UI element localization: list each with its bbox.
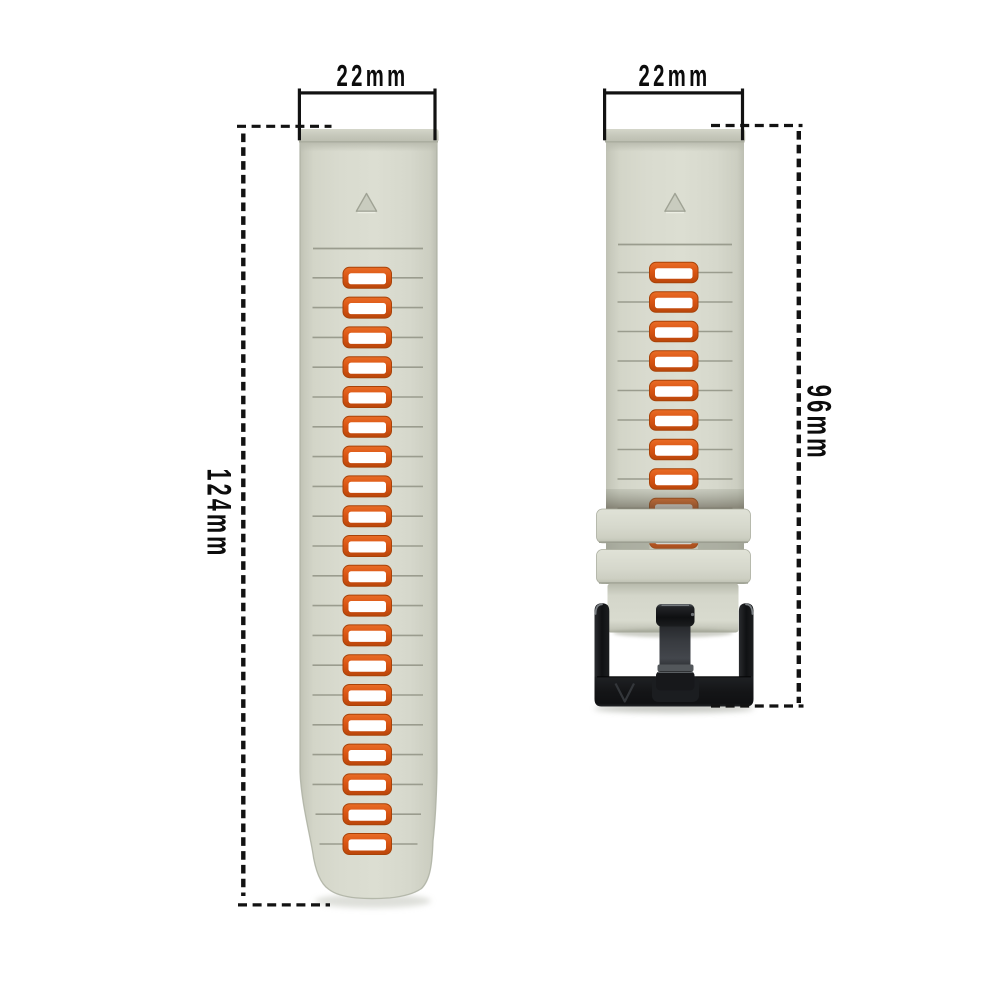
svg-text:22mm: 22mm — [337, 59, 409, 93]
svg-text:96mm: 96mm — [800, 385, 838, 461]
svg-text:124mm: 124mm — [199, 469, 237, 559]
svg-text:22mm: 22mm — [639, 59, 711, 93]
